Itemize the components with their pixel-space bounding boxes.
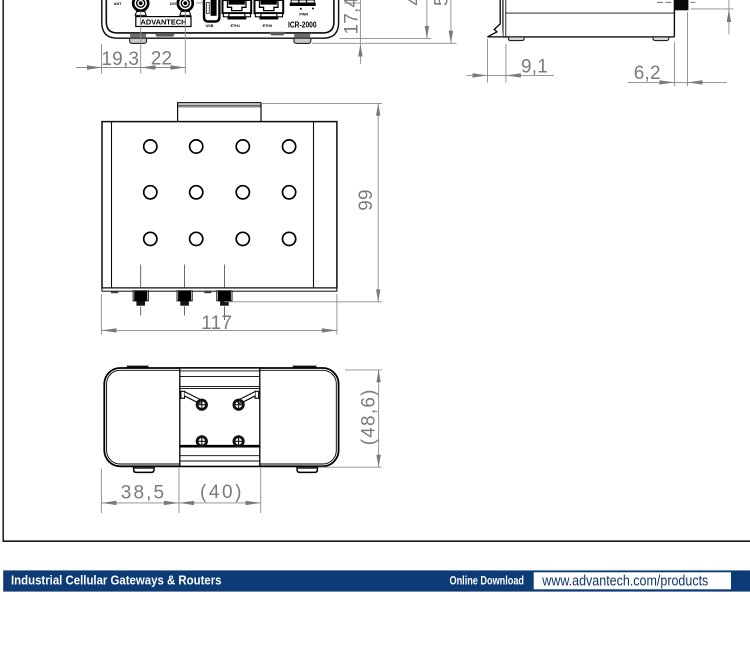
svg-text:ETH0: ETH0 <box>263 24 272 28</box>
svg-text:99: 99 <box>356 189 377 211</box>
svg-text:ETH1: ETH1 <box>231 24 240 28</box>
svg-text:USB: USB <box>206 24 214 28</box>
svg-text:38,5: 38,5 <box>121 482 165 503</box>
svg-text:ANT: ANT <box>114 2 122 6</box>
svg-text:PWR: PWR <box>299 13 308 17</box>
svg-text:(40): (40) <box>200 482 242 503</box>
svg-text:5: 5 <box>432 0 453 6</box>
svg-text:6,2: 6,2 <box>634 63 661 84</box>
svg-text:9,1: 9,1 <box>521 57 548 78</box>
svg-text:Industrial Cellular Gateways &: Industrial Cellular Gateways & Routers <box>11 573 222 587</box>
svg-text:4: 4 <box>404 0 425 6</box>
svg-text:(48,6): (48,6) <box>358 389 379 445</box>
svg-text:Online Download: Online Download <box>450 574 525 588</box>
svg-text:www.advantech.com/products: www.advantech.com/products <box>541 574 708 590</box>
svg-text:ICR-2000: ICR-2000 <box>288 20 317 30</box>
svg-text:DIV: DIV <box>170 2 177 6</box>
svg-text:19,3: 19,3 <box>101 49 139 70</box>
svg-text:17,4: 17,4 <box>342 0 363 35</box>
svg-text:117: 117 <box>201 313 232 334</box>
svg-text:22: 22 <box>151 48 173 69</box>
svg-text:ADVANTECH: ADVANTECH <box>141 18 187 27</box>
